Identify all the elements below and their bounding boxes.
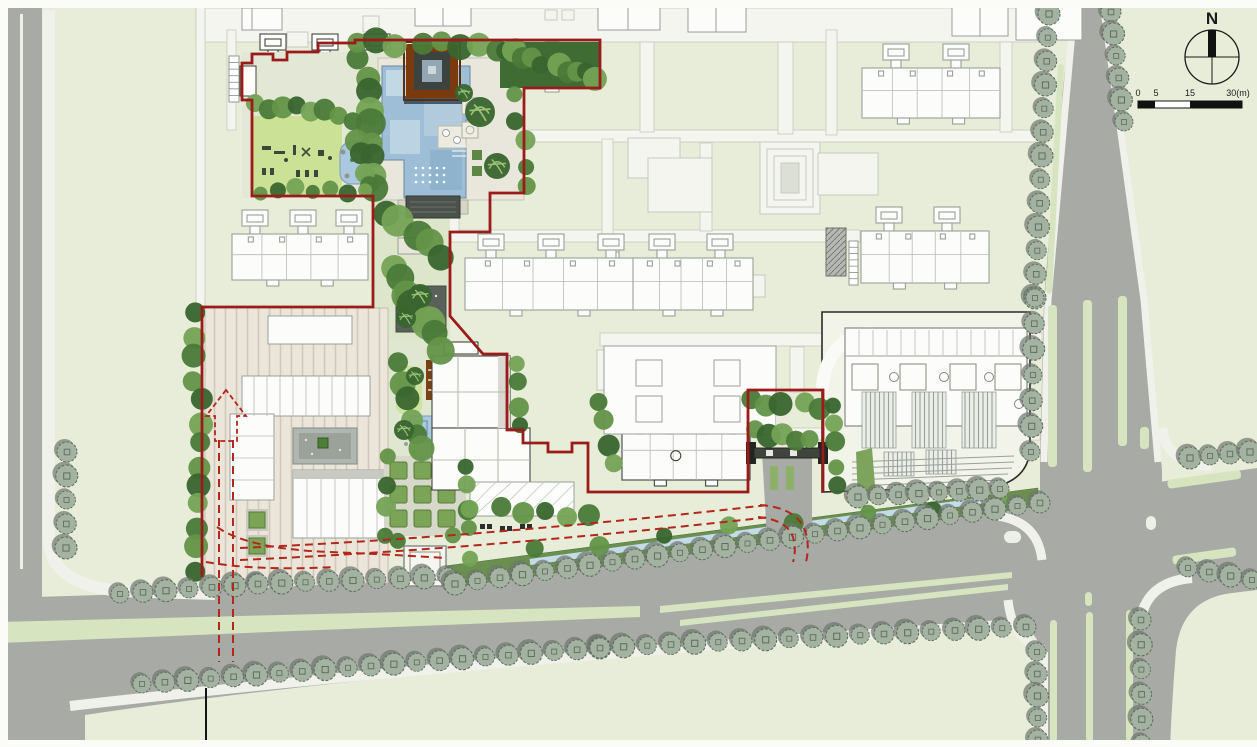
median-strip: [1083, 300, 1092, 472]
sales-center: [822, 312, 1030, 500]
tree-canopy-icon: [378, 477, 396, 495]
hedge-square: [390, 462, 407, 479]
tree-canopy-icon: [395, 386, 419, 410]
median-strip: [1050, 620, 1057, 742]
tree-canopy-icon: [532, 56, 550, 74]
walkway: [196, 0, 205, 307]
ornamental-tree-icon: [455, 84, 473, 102]
hedge-square: [438, 510, 455, 527]
site-plan-map: N 0 5 15 30(m): [0, 0, 1257, 747]
median-strip: [1085, 592, 1092, 606]
tree-canopy-icon: [383, 34, 407, 58]
tree-canopy-icon: [376, 497, 396, 517]
walkway: [790, 347, 804, 392]
tree-canopy-icon: [509, 397, 529, 417]
tree-canopy-icon: [512, 502, 534, 524]
tree-canopy-icon: [458, 475, 476, 493]
median-strip: [1140, 427, 1149, 449]
scale-tick: 0: [1135, 88, 1140, 98]
tree-canopy-icon: [409, 435, 435, 461]
plaza-courtyard: [293, 428, 357, 464]
median-strip: [1118, 296, 1127, 446]
walkway: [1000, 42, 1012, 132]
tree-canopy-icon: [286, 178, 304, 196]
tree-canopy-icon: [825, 431, 845, 451]
ornamental-tree-icon: [408, 284, 432, 308]
ornamental-tree-icon: [465, 97, 495, 127]
tree-canopy-icon: [344, 112, 362, 130]
ornamental-tree-icon: [484, 153, 510, 179]
entrance-gate: [754, 448, 820, 458]
tree-canopy-icon: [188, 493, 208, 513]
tree-canopy-icon: [516, 130, 536, 150]
ornamental-tree-icon: [406, 367, 424, 385]
tree-canopy-icon: [825, 398, 841, 414]
tree-canopy-icon: [825, 415, 843, 433]
tree-canopy-icon: [828, 459, 844, 475]
tree-canopy-icon: [458, 459, 474, 475]
apartment-block: [232, 210, 368, 286]
tree-canopy-icon: [388, 352, 408, 372]
tree-canopy-icon: [594, 410, 614, 430]
walkway: [826, 30, 837, 135]
tree-canopy-icon: [350, 142, 372, 164]
tree-canopy-icon: [506, 86, 522, 102]
section-marker-line: [205, 688, 207, 744]
tree-canopy-icon: [828, 476, 846, 494]
walkway: [778, 42, 793, 134]
tree-canopy-icon: [605, 454, 623, 472]
tree-canopy-icon: [769, 392, 793, 416]
tree-canopy-icon: [557, 507, 577, 527]
tree-canopy-icon: [506, 112, 524, 130]
tree-canopy-icon: [254, 187, 268, 201]
median-strip: [1086, 612, 1093, 742]
utility-box: [826, 228, 846, 276]
ornamental-tree-icon: [396, 308, 416, 328]
ornamental-tree-icon: [394, 420, 414, 440]
tree-canopy-icon: [184, 534, 208, 558]
scale-tick: 30(m): [1226, 88, 1250, 98]
tree-canopy-icon: [509, 373, 527, 391]
tree-canopy-icon: [509, 356, 525, 372]
tree-canopy-icon: [801, 430, 819, 448]
hedge-square: [414, 462, 431, 479]
north-label: N: [1206, 9, 1218, 28]
median-strip: [1048, 305, 1057, 467]
tree-canopy-icon: [462, 551, 478, 567]
tree-canopy-icon: [518, 159, 534, 175]
walkway: [602, 139, 613, 241]
tree-canopy-icon: [720, 516, 738, 534]
tree-canopy-icon: [590, 393, 608, 411]
hedge-square: [414, 510, 431, 527]
scale-tick: 15: [1185, 88, 1195, 98]
tree-canopy-icon: [390, 533, 406, 549]
tree-canopy-icon: [536, 502, 554, 520]
tree-canopy-icon: [322, 181, 338, 197]
tree-canopy-icon: [412, 33, 434, 55]
scale-tick: 5: [1153, 88, 1158, 98]
tree-canopy-icon: [491, 497, 511, 517]
walkway: [460, 130, 1040, 142]
walkway: [640, 42, 654, 132]
stairs-feature: [229, 56, 239, 102]
site-plan: N 0 5 15 30(m): [0, 0, 1257, 747]
roof-hatch: [862, 392, 896, 448]
tree-canopy-icon: [461, 500, 479, 518]
tree-canopy-icon: [427, 337, 455, 365]
stairs-feature: [849, 241, 858, 285]
tree-canopy-icon: [380, 448, 396, 464]
hedge-square: [414, 486, 431, 503]
tree-canopy-icon: [656, 528, 672, 544]
tree-canopy-icon: [339, 184, 357, 202]
tree-canopy-icon: [526, 539, 544, 557]
apartment-block: [465, 234, 635, 316]
tree-canopy-icon: [598, 435, 620, 457]
tree-canopy-icon: [190, 432, 210, 452]
